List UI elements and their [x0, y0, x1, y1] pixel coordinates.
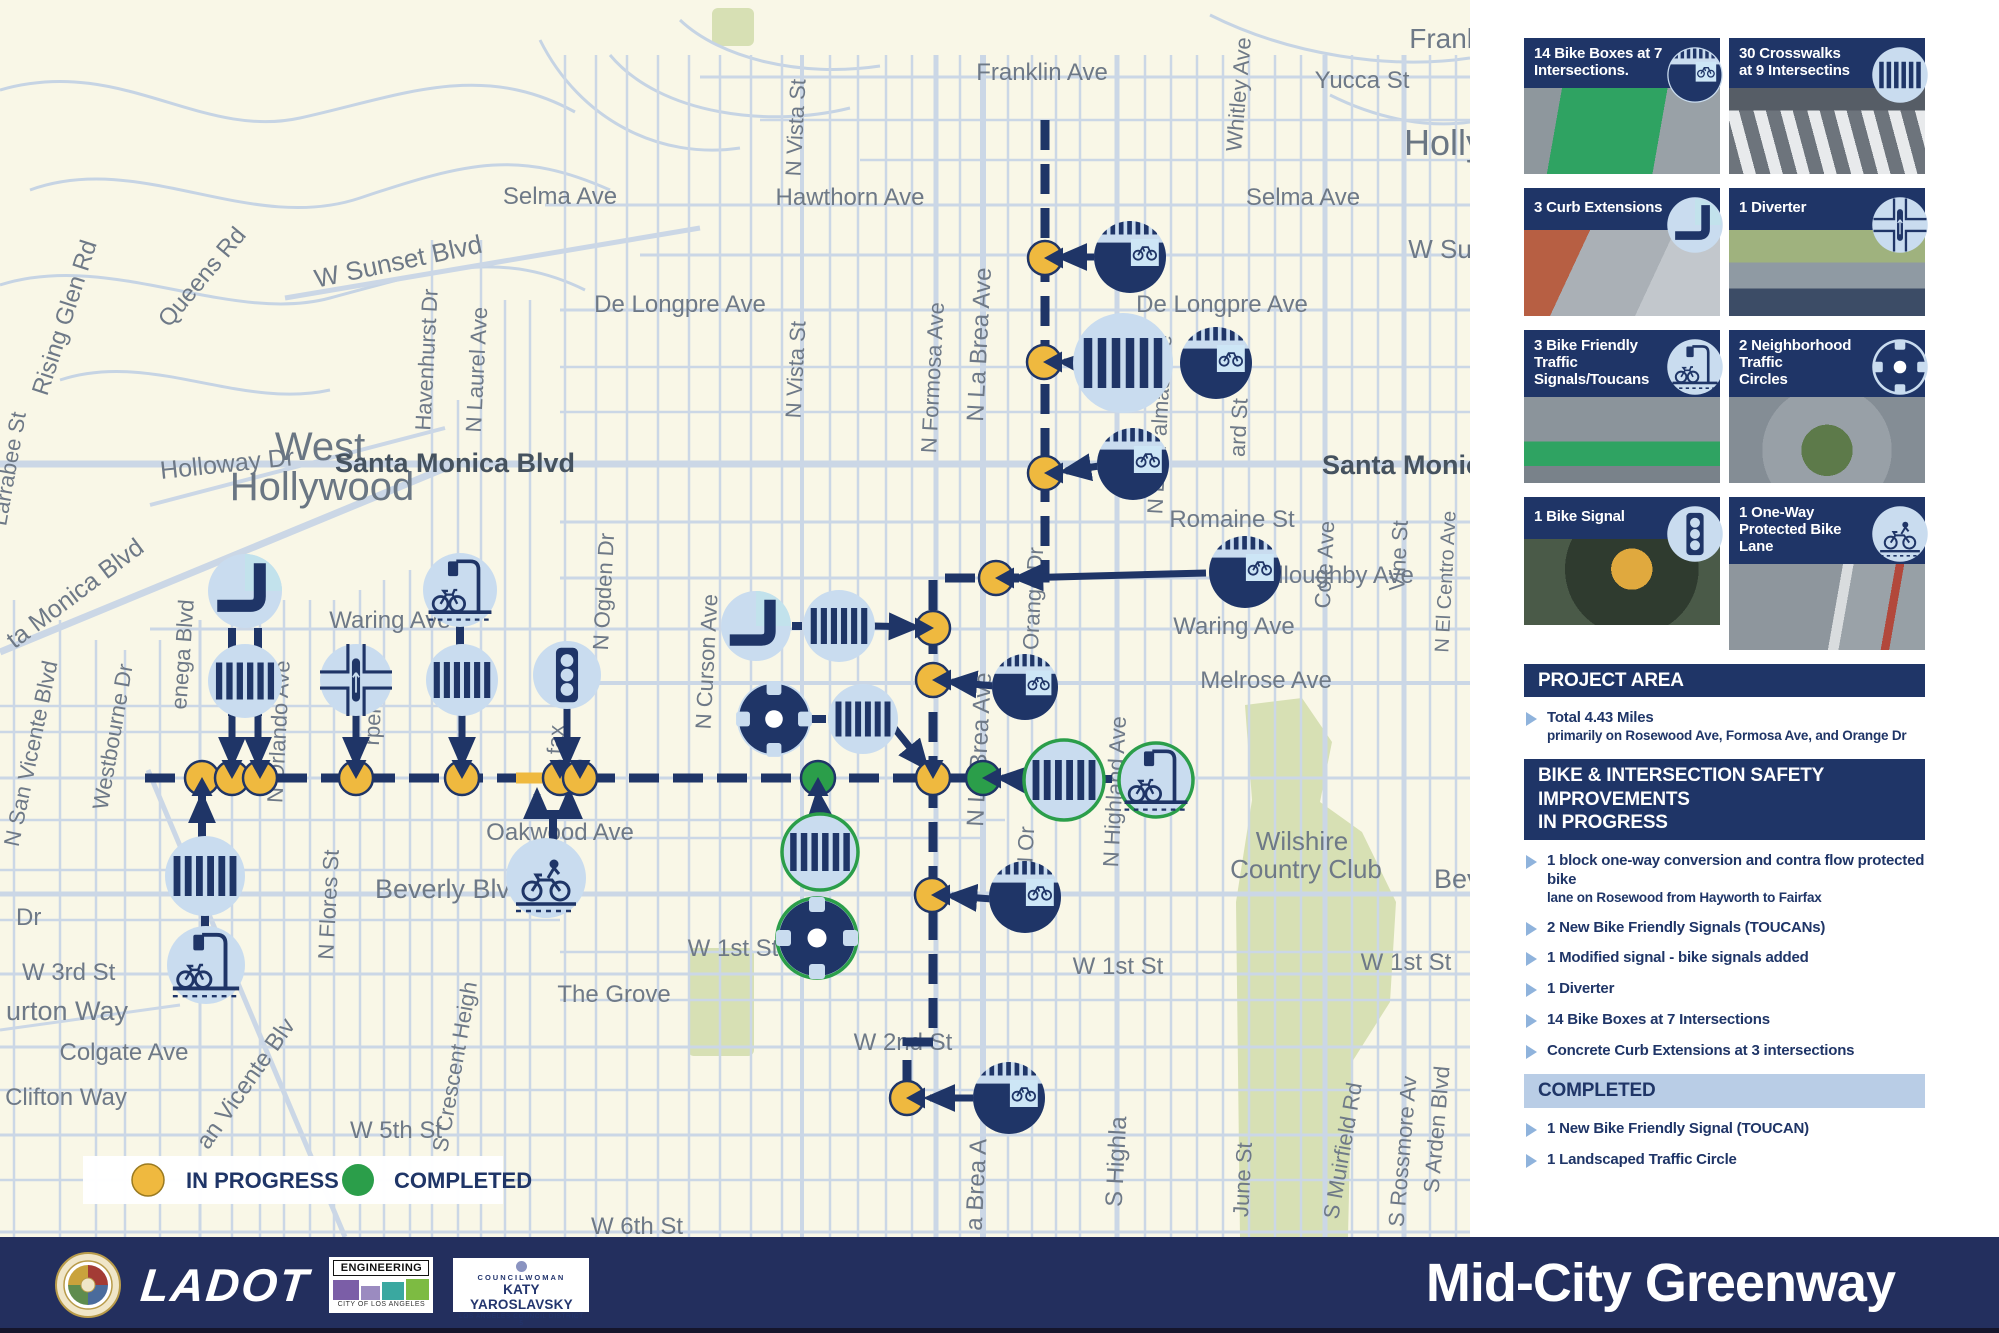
bullet-item: 1 Diverter	[1524, 980, 1925, 999]
cyclist-badge	[506, 838, 586, 918]
project-sections: PROJECT AREATotal 4.43 Milesprimarily on…	[1524, 664, 1925, 1170]
in-progress-marker	[916, 760, 950, 795]
crosswalk-icon	[1871, 29, 1929, 87]
footer-bar: LADOT ENGINEERING CITY OF LOS ANGELES CO…	[0, 1237, 1999, 1333]
street-label: De Longpre Ave	[1136, 291, 1308, 318]
street-label: Selma Ave	[503, 183, 617, 210]
map-canvas: Rising Glen RdQueens RdLarrabee StHollow…	[0, 0, 1470, 1237]
in-progress-marker	[890, 1081, 925, 1115]
improvement-card: 14 Bike Boxes at 7 Intersections.	[1524, 38, 1720, 174]
ladot-logo: LADOT	[138, 1258, 312, 1312]
bikebox-icon	[1666, 29, 1724, 87]
diverter-badge	[320, 644, 392, 716]
card-title: 30 Crosswalks at 9 Intersectins	[1729, 38, 1925, 88]
street-label: Beverly Blvd	[375, 874, 525, 904]
bullet-triangle-icon	[1526, 1123, 1537, 1137]
street-label: Cole Ave	[1310, 520, 1340, 609]
signalhead-badge	[533, 641, 601, 709]
section-header: COMPLETED	[1524, 1074, 1925, 1108]
street-label: Clifton Way	[5, 1084, 127, 1111]
bullet-text: Total 4.43 Miles	[1547, 709, 1906, 728]
crosswalk-badge	[803, 590, 875, 662]
bullet-text: Concrete Curb Extensions at 3 intersecti…	[1547, 1042, 1854, 1061]
street-label: Holly	[1404, 122, 1470, 163]
in-progress-marker	[1027, 345, 1062, 379]
in-progress-marker	[979, 561, 1014, 595]
card-title: 2 Neighborhood Traffic Circles	[1729, 330, 1925, 397]
card-title: 3 Bike Friendly Traffic Signals/Toucans	[1524, 330, 1720, 397]
curbext-badge	[721, 591, 791, 661]
bullet-triangle-icon	[1526, 1154, 1537, 1168]
street-label: Santa Monica Blvd	[335, 448, 575, 478]
bullet-item: 1 New Bike Friendly Signal (TOUCAN)	[1524, 1120, 1925, 1139]
completed-legend-dot	[342, 1164, 374, 1196]
street-label: Bev	[1434, 864, 1470, 894]
diverter-icon	[1871, 179, 1929, 237]
engineering-logo-skyline	[333, 1278, 429, 1300]
street-label: W 1st St	[688, 935, 779, 962]
card-title: 1 Bike Signal	[1524, 497, 1720, 539]
info-sidebar: 14 Bike Boxes at 7 Intersections. 30 Cro…	[1470, 0, 1999, 1237]
in-progress-legend-dot	[132, 1164, 164, 1196]
bullet-text: lane on Rosewood from Hayworth to Fairfa…	[1547, 890, 1925, 907]
card-title: 3 Curb Extensions	[1524, 188, 1720, 230]
crosswalk-badge	[782, 814, 858, 890]
street-label: Yucca St	[1315, 67, 1410, 94]
card-photo	[1524, 397, 1720, 483]
engineering-logo: ENGINEERING CITY OF LOS ANGELES	[329, 1257, 433, 1313]
skyline-block	[333, 1280, 358, 1300]
street-label: June St	[1228, 1142, 1257, 1218]
in-progress-marker	[243, 760, 277, 795]
poster-title: Mid-City Greenway	[1426, 1252, 1895, 1314]
bullet-triangle-icon	[1526, 1014, 1537, 1028]
council-seal-icon	[516, 1261, 527, 1272]
skyline-block	[382, 1282, 404, 1300]
poster-root: Rising Glen RdQueens RdLarrabee StHollow…	[0, 0, 1999, 1333]
street-label: N Vista St	[780, 78, 810, 177]
completed-marker	[801, 761, 835, 796]
legend-in-progress-label: IN PROGRESS	[186, 1168, 339, 1193]
bullet-item: 1 Landscaped Traffic Circle	[1524, 1151, 1925, 1170]
card-photo	[1729, 397, 1925, 483]
bikesignal-badge	[423, 553, 497, 627]
bullet-item: Total 4.43 Milesprimarily on Rosewood Av…	[1524, 709, 1925, 745]
park-area	[712, 8, 754, 46]
bullet-text: 14 Bike Boxes at 7 Intersections	[1547, 1011, 1770, 1030]
improvement-card: 3 Curb Extensions	[1524, 188, 1720, 316]
crosswalk-badge	[828, 684, 898, 754]
bullet-text: 1 block one-way conversion and contra fl…	[1547, 852, 1925, 890]
bullet-triangle-icon	[1526, 1045, 1537, 1059]
street-label: Hawthorn Ave	[776, 184, 925, 211]
card-title: 14 Bike Boxes at 7 Intersections.	[1524, 38, 1720, 88]
connector-arrow	[1066, 466, 1099, 471]
card-title: 1 One-Way Protected Bike Lane	[1729, 497, 1925, 564]
improvement-card: 3 Bike Friendly Traffic Signals/Toucans	[1524, 330, 1720, 483]
street-label: N Vista St	[780, 320, 810, 419]
street-label: ard St	[1224, 398, 1252, 458]
bullet-text: 1 Modified signal - bike signals added	[1547, 949, 1809, 968]
street-label: Wilshire	[1256, 826, 1348, 856]
bullet-text: primarily on Rosewood Ave, Formosa Ave, …	[1547, 728, 1906, 745]
connector-arrow	[952, 896, 992, 899]
crosswalk-badge	[426, 644, 498, 716]
in-progress-marker	[445, 760, 479, 795]
in-progress-marker	[563, 760, 597, 795]
street-label: a Brea A	[961, 1138, 993, 1231]
curbext-icon	[1666, 179, 1724, 237]
crosswalk-badge	[1024, 740, 1104, 820]
card-title: 1 Diverter	[1729, 188, 1925, 230]
street-label: Country Club	[1230, 854, 1382, 884]
street-label: Waring Ave	[1173, 613, 1294, 640]
roundabout-badge	[776, 897, 858, 979]
in-progress-marker	[1028, 456, 1063, 490]
bullet-item: 1 Modified signal - bike signals added	[1524, 949, 1925, 968]
bullet-triangle-icon	[1526, 983, 1537, 997]
street-label: W 3rd St	[22, 959, 116, 986]
roundabout-icon	[1871, 321, 1929, 379]
street-label: W 6th St	[591, 1213, 683, 1237]
council-role: COUNCILWOMAN	[457, 1273, 585, 1282]
street-label: Santa Monica	[1322, 450, 1470, 480]
bullet-text: 1 New Bike Friendly Signal (TOUCAN)	[1547, 1120, 1809, 1139]
councilwoman-logo: COUNCILWOMAN KATY YAROSLAVSKY LOS ANGELE…	[453, 1258, 589, 1312]
footer-logos: LADOT ENGINEERING CITY OF LOS ANGELES CO…	[55, 1237, 589, 1333]
project-map: Rising Glen RdQueens RdLarrabee StHollow…	[0, 0, 1470, 1237]
engineering-logo-subtitle: CITY OF LOS ANGELES	[333, 1301, 429, 1308]
improvement-cards-grid: 14 Bike Boxes at 7 Intersections. 30 Cro…	[1524, 38, 1925, 650]
street-label: W 1st St	[1361, 949, 1452, 976]
improvement-card: 1 One-Way Protected Bike Lane	[1729, 497, 1925, 650]
crosswalk-badge	[165, 836, 245, 916]
street-label: Dr	[16, 904, 41, 931]
improvement-card: 1 Diverter	[1729, 188, 1925, 316]
cyclist-icon	[1871, 488, 1929, 546]
connector-arrow	[873, 626, 914, 627]
la-city-seal-icon	[55, 1252, 121, 1318]
section-header: BIKE & INTERSECTION SAFETY IMPROVEMENTS …	[1524, 759, 1925, 840]
bullet-item: 1 block one-way conversion and contra fl…	[1524, 852, 1925, 906]
signalhead-icon	[1666, 488, 1724, 546]
improvement-card: 1 Bike Signal	[1524, 497, 1720, 650]
street-label: Selma Ave	[1246, 184, 1360, 211]
bullet-text: 2 New Bike Friendly Signals (TOUCANs)	[1547, 919, 1825, 938]
bullet-item: Concrete Curb Extensions at 3 intersecti…	[1524, 1042, 1925, 1061]
engineering-logo-title: ENGINEERING	[333, 1260, 429, 1276]
in-progress-marker	[916, 663, 951, 697]
bullet-item: 14 Bike Boxes at 7 Intersections	[1524, 1011, 1925, 1030]
street-label: Franklin Ave	[976, 59, 1108, 86]
street-label: S Highla	[1101, 1115, 1133, 1208]
street-label: W Su	[1408, 234, 1470, 264]
curbext-badge	[208, 554, 282, 628]
in-progress-marker	[915, 611, 950, 645]
map-legend: IN PROGRESS COMPLETED	[83, 1156, 532, 1204]
street-label: Frank	[1409, 23, 1470, 54]
council-name: KATY YAROSLAVSKY	[457, 1282, 585, 1312]
connector-arrow	[952, 682, 994, 686]
legend-completed-label: COMPLETED	[394, 1168, 532, 1193]
in-progress-marker	[915, 878, 950, 912]
improvement-card: 30 Crosswalks at 9 Intersectins	[1729, 38, 1925, 174]
bullet-triangle-icon	[1526, 855, 1537, 869]
in-progress-marker	[339, 760, 373, 795]
in-progress-marker	[1028, 241, 1063, 275]
card-photo	[1729, 564, 1925, 650]
crosswalk-badge	[208, 644, 282, 718]
bikesignal-icon	[1666, 321, 1724, 379]
street-label: Colgate Ave	[60, 1039, 189, 1066]
completed-marker	[966, 761, 1001, 795]
street-label: The Grove	[557, 981, 670, 1008]
street-label: Romaine St	[1169, 506, 1295, 533]
bullet-item: 2 New Bike Friendly Signals (TOUCANs)	[1524, 919, 1925, 938]
bullet-text: 1 Landscaped Traffic Circle	[1547, 1151, 1737, 1170]
crosswalk-badge	[1073, 313, 1173, 413]
street-label: W 1st St	[1073, 953, 1164, 980]
skyline-block	[361, 1286, 381, 1300]
connector-arrow	[1018, 573, 1206, 578]
bullet-triangle-icon	[1526, 952, 1537, 966]
skyline-block	[406, 1279, 429, 1300]
street-label: Vine St	[1384, 520, 1413, 592]
street-label: De Longpre Ave	[594, 291, 766, 318]
bullet-triangle-icon	[1526, 922, 1537, 936]
section-header: PROJECT AREA	[1524, 664, 1925, 698]
bikesignal-badge	[1119, 743, 1193, 817]
improvement-card: 2 Neighborhood Traffic Circles	[1729, 330, 1925, 483]
street-label: urton Way	[6, 996, 129, 1026]
council-district: LOS ANGELES COUNCIL DISTRICT 5	[457, 1313, 585, 1327]
bullet-text: 1 Diverter	[1547, 980, 1614, 999]
sidebar-content: 14 Bike Boxes at 7 Intersections. 30 Cro…	[1524, 38, 1925, 1170]
street-label: Melrose Ave	[1200, 667, 1332, 694]
bikesignal-badge	[167, 926, 245, 1004]
bullet-triangle-icon	[1526, 712, 1537, 726]
